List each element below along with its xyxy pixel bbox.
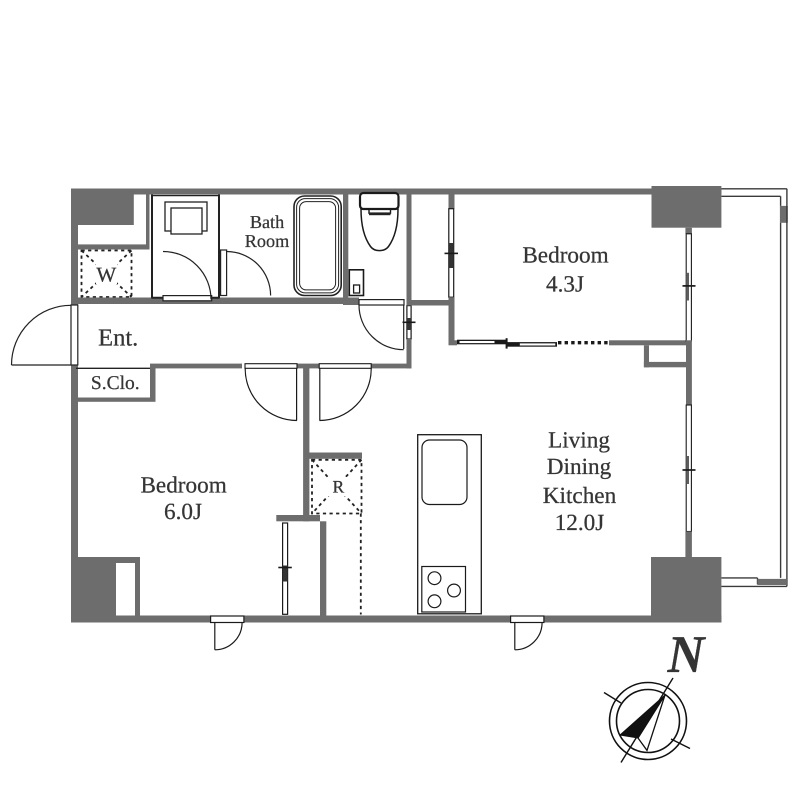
svg-text:Bath: Bath bbox=[250, 212, 284, 232]
svg-text:Kitchen: Kitchen bbox=[543, 483, 617, 509]
svg-text:R: R bbox=[333, 477, 345, 497]
svg-text:S.Clo.: S.Clo. bbox=[91, 373, 140, 394]
svg-text:12.0J: 12.0J bbox=[555, 510, 605, 536]
svg-text:Dining: Dining bbox=[547, 454, 612, 480]
svg-text:Bedroom: Bedroom bbox=[522, 242, 608, 268]
svg-text:N: N bbox=[667, 626, 707, 684]
svg-text:4.3J: 4.3J bbox=[546, 271, 584, 297]
svg-text:Room: Room bbox=[245, 231, 289, 251]
svg-text:W: W bbox=[96, 262, 116, 286]
svg-text:Living: Living bbox=[548, 427, 610, 453]
svg-text:Bedroom: Bedroom bbox=[140, 473, 226, 499]
svg-text:Ent.: Ent. bbox=[98, 324, 138, 351]
svg-text:6.0J: 6.0J bbox=[164, 499, 202, 525]
